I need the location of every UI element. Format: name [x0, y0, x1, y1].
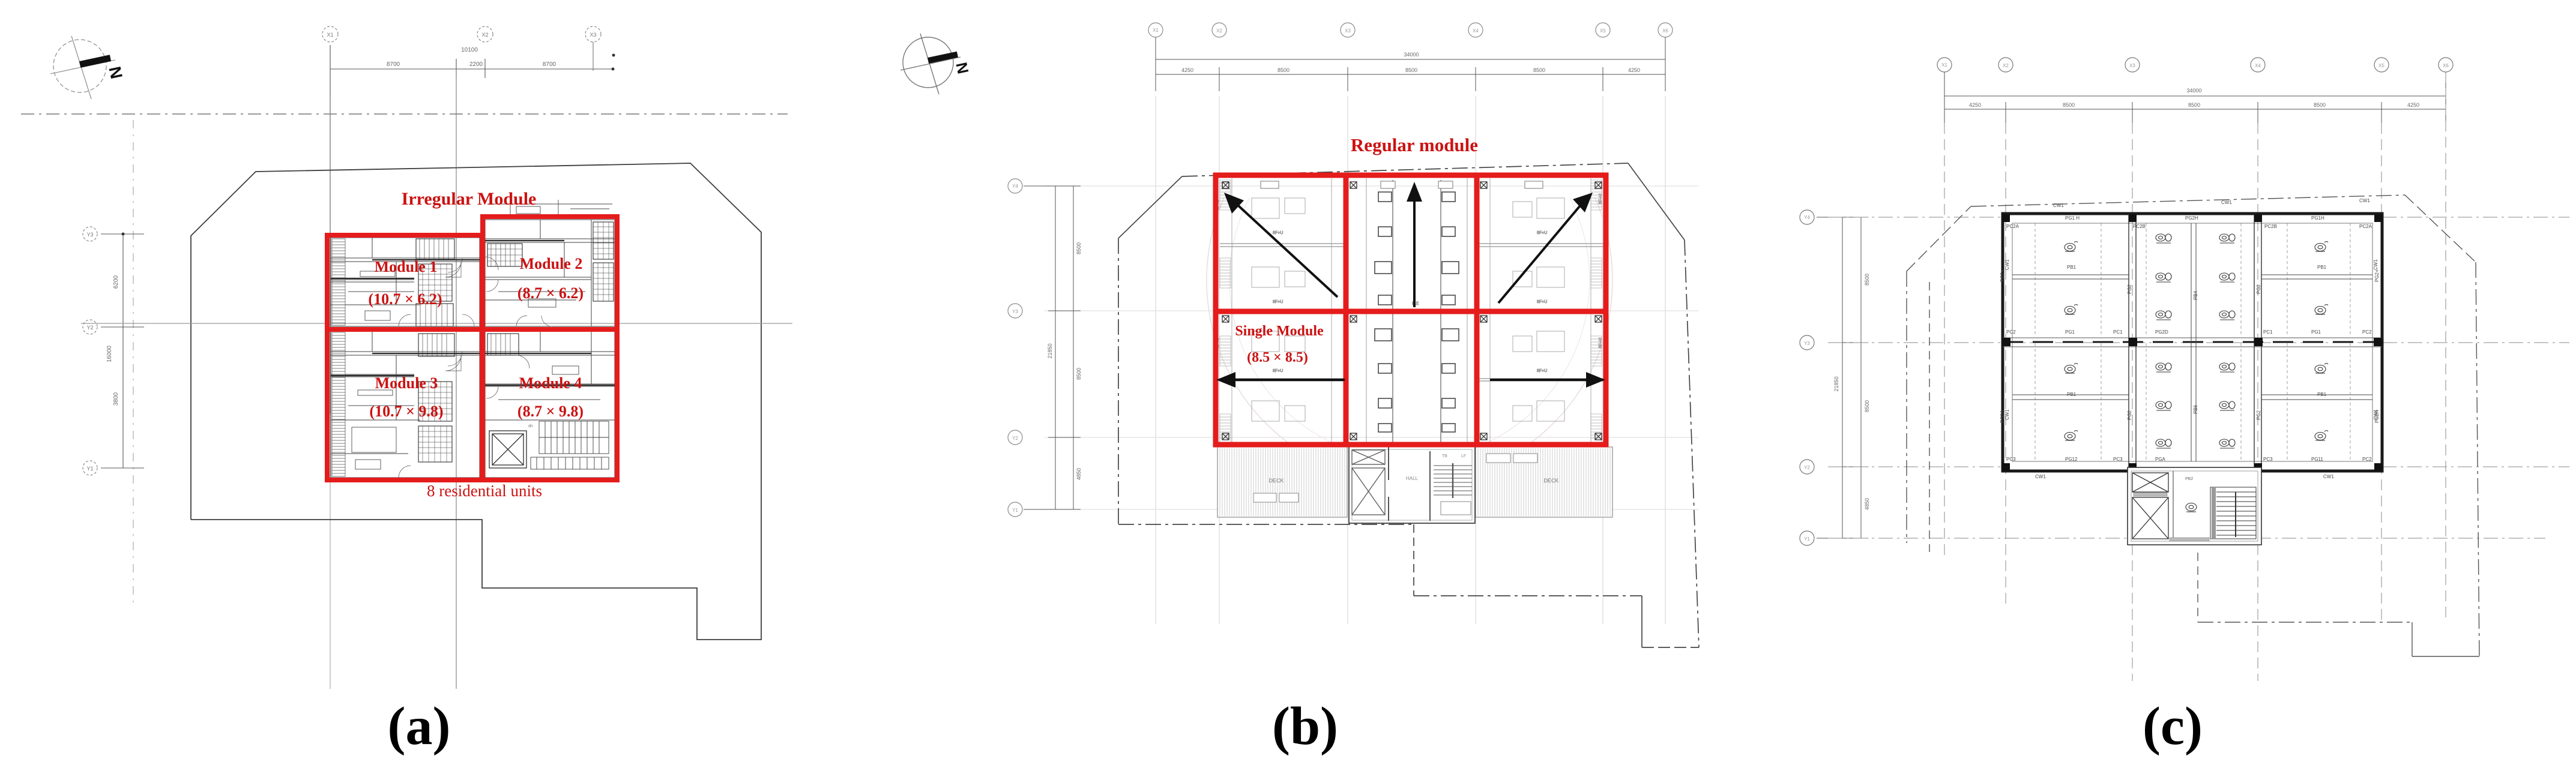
svg-text:CW1: CW1: [2004, 409, 2010, 420]
svg-text:4850: 4850: [1076, 468, 1082, 480]
svg-text:CW1: CW1: [2035, 474, 2046, 479]
svg-text:4250: 4250: [1181, 67, 1193, 73]
svg-text:X4: X4: [1473, 28, 1479, 34]
svg-text:PG2: PG2: [2127, 410, 2132, 420]
svg-text:Irregular Module: Irregular Module: [402, 189, 537, 209]
svg-text:PG2D: PG2D: [2155, 329, 2168, 335]
svg-text:8700: 8700: [543, 61, 557, 68]
svg-text:Module 1: Module 1: [375, 258, 438, 275]
svg-text:X1: X1: [327, 32, 333, 38]
svg-text:X1: X1: [1941, 62, 1947, 68]
svg-text:16000: 16000: [106, 346, 113, 362]
svg-text:34000: 34000: [2186, 88, 2201, 94]
svg-text:(8.5 × 8.5): (8.5 × 8.5): [1247, 350, 1308, 365]
svg-text:PG2+: PG2+: [2000, 269, 2005, 282]
svg-text:8500: 8500: [2188, 102, 2200, 108]
svg-text:8F+U: 8F+U: [1537, 369, 1547, 373]
svg-text:PG1H: PG1H: [2311, 215, 2324, 221]
svg-text:8500: 8500: [1076, 368, 1082, 380]
svg-text:PC3: PC3: [2113, 457, 2123, 462]
svg-text:Y1: Y1: [1012, 508, 1018, 513]
svg-text:TB: TB: [1442, 454, 1447, 458]
svg-text:4250: 4250: [1628, 67, 1640, 73]
svg-text:PG2A: PG2A: [2000, 410, 2005, 423]
svg-text:HALL: HALL: [1406, 476, 1419, 481]
svg-text:X6: X6: [1662, 28, 1668, 34]
svg-text:(8.7 × 9.8): (8.7 × 9.8): [517, 403, 584, 420]
svg-text:PG1 H: PG1 H: [2065, 215, 2080, 221]
svg-text:X5: X5: [2378, 63, 2384, 68]
svg-text:PC2B: PC2B: [2133, 224, 2146, 229]
svg-text:X4: X4: [2255, 63, 2261, 68]
svg-text:CW1: CW1: [2053, 203, 2064, 208]
svg-text:8F+U: 8F+U: [1273, 231, 1283, 235]
svg-text:CW1: CW1: [2004, 259, 2010, 270]
svg-text:Module 3: Module 3: [375, 374, 438, 392]
svg-text:Regular module: Regular module: [1351, 134, 1478, 155]
svg-text:PC2: PC2: [2362, 329, 2372, 335]
svg-text:(10.7 × 6.2): (10.7 × 6.2): [368, 290, 442, 308]
svg-text:PG2+: PG2+: [2374, 269, 2380, 282]
svg-text:8F+U: 8F+U: [1537, 300, 1547, 304]
svg-text:8500: 8500: [1864, 400, 1870, 412]
svg-text:PB1: PB1: [2067, 265, 2077, 270]
svg-text:N: N: [105, 65, 126, 80]
svg-text:PC2B: PC2B: [2264, 224, 2277, 229]
svg-text:21850: 21850: [1047, 343, 1053, 358]
svg-text:CW1: CW1: [2359, 198, 2370, 203]
svg-text:Single Module: Single Module: [1235, 323, 1324, 339]
svg-text:X6: X6: [2443, 63, 2449, 68]
svg-text:X5: X5: [1600, 28, 1606, 34]
svg-text:4850: 4850: [1864, 498, 1870, 510]
svg-text:PB1: PB1: [2317, 265, 2327, 270]
svg-text:PB2: PB2: [2185, 477, 2193, 481]
svg-text:PGA: PGA: [2155, 457, 2166, 462]
svg-text:Module 4: Module 4: [519, 374, 582, 392]
svg-text:X1: X1: [1153, 28, 1159, 33]
svg-text:dn: dn: [528, 424, 533, 428]
svg-text:(10.7 × 9.8): (10.7 × 9.8): [369, 403, 443, 420]
svg-text:DECK: DECK: [1268, 478, 1283, 484]
svg-text:(b): (b): [1272, 697, 1338, 756]
svg-text:8500: 8500: [2314, 102, 2326, 108]
svg-text:8500: 8500: [1864, 274, 1870, 286]
svg-text:PG2H: PG2H: [2185, 215, 2198, 221]
svg-text:N: N: [952, 61, 972, 76]
svg-text:10100: 10100: [461, 47, 478, 53]
svg-text:PG1: PG1: [2065, 329, 2075, 335]
svg-text:8 residential units: 8 residential units: [427, 482, 542, 500]
svg-text:PG2: PG2: [2256, 284, 2261, 294]
svg-text:21850: 21850: [1833, 376, 1839, 391]
svg-text:PC1: PC1: [2263, 329, 2273, 335]
svg-text:PG11: PG11: [2311, 457, 2323, 462]
svg-text:PG2A: PG2A: [2374, 410, 2380, 423]
svg-text:Y1: Y1: [1804, 536, 1810, 542]
svg-text:PC2: PC2: [2006, 329, 2016, 335]
svg-text:PB4: PB4: [2193, 290, 2198, 300]
svg-text:X2: X2: [1216, 28, 1222, 34]
svg-text:8500: 8500: [1277, 67, 1290, 73]
svg-text:PC1: PC1: [2113, 329, 2123, 335]
svg-text:Y1: Y1: [86, 466, 93, 472]
svg-text:PG1: PG1: [2311, 329, 2321, 335]
svg-text:8F+U: 8F+U: [1273, 300, 1283, 304]
svg-text:Module 2: Module 2: [520, 255, 583, 272]
svg-text:Y2: Y2: [1804, 465, 1810, 470]
svg-text:Y2: Y2: [1012, 436, 1018, 441]
svg-text:Y4: Y4: [1012, 184, 1018, 189]
svg-text:X2: X2: [2003, 63, 2009, 68]
svg-text:X3: X3: [2129, 63, 2135, 68]
svg-text:Y3: Y3: [1012, 309, 1018, 314]
svg-text:PC3: PC3: [2263, 457, 2273, 462]
svg-text:4250: 4250: [1969, 102, 1981, 108]
svg-text:X3: X3: [1345, 28, 1351, 34]
svg-text:Y2: Y2: [86, 325, 93, 331]
svg-text:Y3: Y3: [1804, 341, 1810, 346]
svg-text:8500: 8500: [1076, 242, 1082, 254]
svg-text:PG12: PG12: [2065, 457, 2078, 462]
svg-text:CW1: CW1: [2323, 474, 2334, 479]
svg-text:8F+U: 8F+U: [1273, 369, 1283, 373]
svg-text:4250: 4250: [2407, 102, 2419, 108]
svg-text:X3: X3: [590, 32, 596, 38]
svg-text:LF: LF: [1461, 454, 1466, 458]
svg-text:PG2: PG2: [2127, 284, 2132, 294]
svg-text:PC2A: PC2A: [2006, 224, 2019, 229]
svg-text:8500: 8500: [2063, 102, 2075, 108]
svg-text:8F+U: 8F+U: [1537, 231, 1547, 235]
svg-text:8500: 8500: [1405, 67, 1417, 73]
svg-text:PG2: PG2: [2256, 410, 2261, 420]
svg-text:CW1: CW1: [2221, 200, 2232, 205]
svg-text:(a): (a): [388, 697, 451, 756]
svg-text:PB6: PB6: [2193, 404, 2198, 414]
svg-text:6200: 6200: [113, 275, 119, 289]
svg-text:2200: 2200: [469, 61, 483, 68]
svg-text:(8.7 × 6.2): (8.7 × 6.2): [517, 284, 584, 302]
svg-text:(c): (c): [2143, 697, 2203, 756]
svg-text:X2: X2: [481, 32, 488, 38]
svg-text:PC3: PC3: [2006, 457, 2016, 462]
svg-text:CW1: CW1: [2373, 259, 2378, 270]
svg-text:3800: 3800: [113, 392, 119, 406]
svg-text:8500: 8500: [1533, 67, 1545, 73]
svg-text:PC2A: PC2A: [2359, 224, 2372, 229]
svg-text:PB1: PB1: [2317, 392, 2327, 397]
svg-text:Y3: Y3: [86, 232, 93, 238]
svg-text:PC2: PC2: [2362, 457, 2372, 462]
svg-text:DECK: DECK: [1543, 478, 1558, 484]
svg-text:Y4: Y4: [1804, 215, 1810, 220]
svg-text:8700: 8700: [387, 61, 400, 68]
svg-text:PB1: PB1: [2067, 392, 2077, 397]
svg-text:34000: 34000: [1404, 52, 1419, 58]
